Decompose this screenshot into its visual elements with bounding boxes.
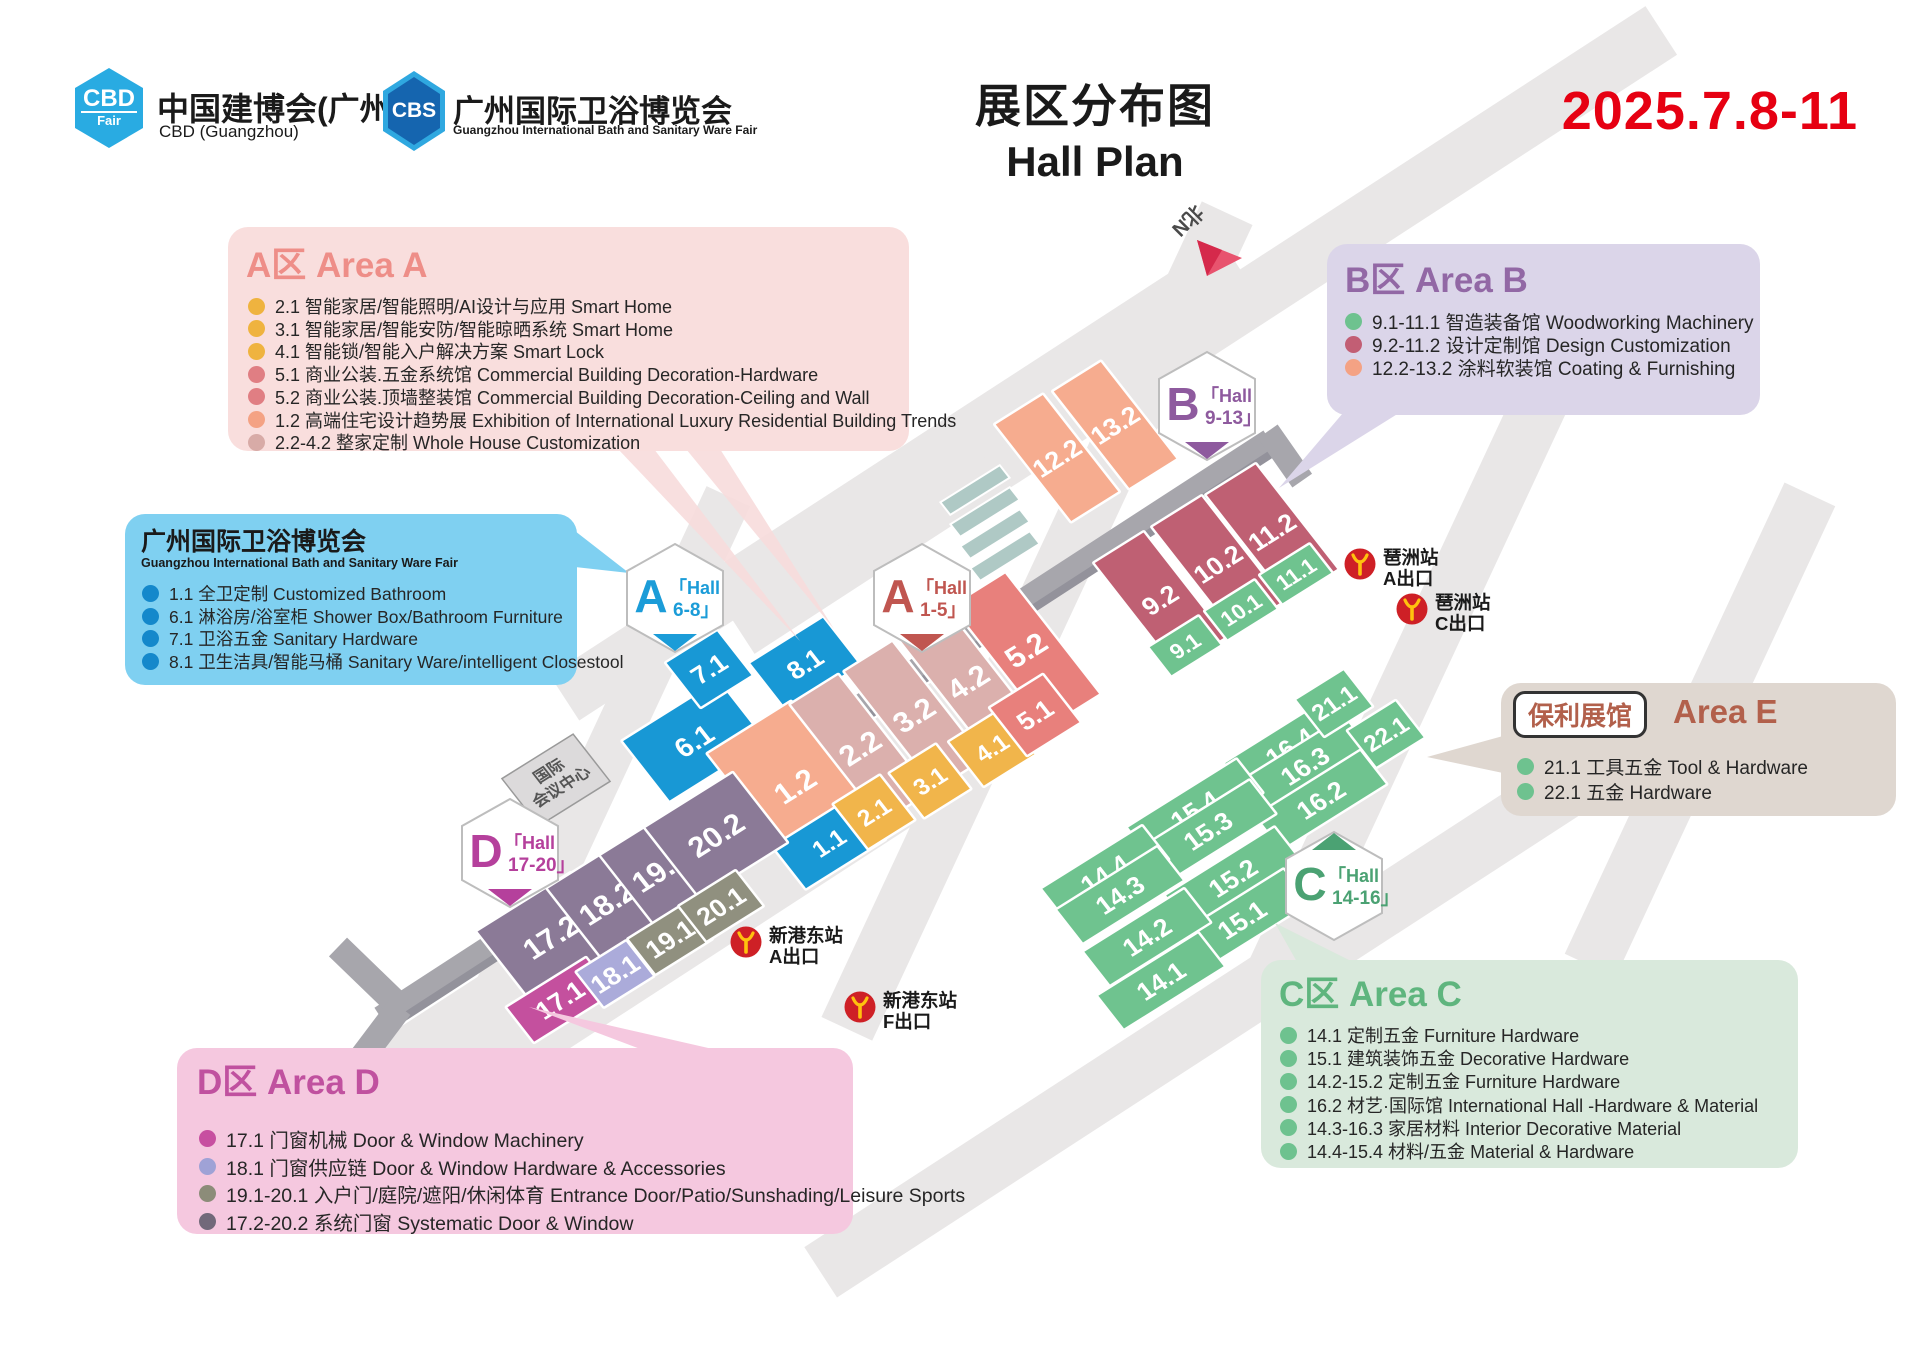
legend-bath-fair-item-1: 6.1 淋浴房/浴室柜 Shower Box/Bathroom Furnitur…: [142, 604, 563, 629]
legend-item-text: 6.1 淋浴房/浴室柜 Shower Box/Bathroom Furnitur…: [169, 604, 563, 629]
badge-letter: A: [881, 570, 914, 622]
page-title-cn: 展区分布图: [920, 70, 1270, 136]
legend-dot: [1345, 359, 1362, 376]
badge-hall-word: 「Hall: [916, 577, 967, 598]
legend-dot: [248, 343, 265, 360]
legend-item-text: 22.1 五金 Hardware: [1544, 778, 1712, 805]
metro-station-name: 新港东站: [769, 925, 844, 946]
legend-dot: [199, 1185, 216, 1202]
legend-dot: [1517, 758, 1534, 775]
legend-item-text: 16.2 材艺·国际馆 International Hall -Hardware…: [1307, 1092, 1758, 1118]
legend-item-text: 14.1 定制五金 Furniture Hardware: [1307, 1022, 1579, 1048]
legend-item-text: 18.1 门窗供应链 Door & Window Hardware & Acce…: [226, 1152, 726, 1181]
legend-area-d-item-3: 17.2-20.2 系统门窗 Systematic Door & Window: [199, 1207, 633, 1236]
legend-bath-fair-title: 广州国际卫浴博览会: [141, 522, 366, 558]
badge-hall-range: 14-16」: [1332, 888, 1400, 909]
metro-琶洲站-A出口: 琶洲站A出口: [1345, 547, 1440, 589]
legend-area-d-item-2: 19.1-20.1 入户门/庭院/遮阳/休闲体育 Entrance Door/P…: [199, 1179, 965, 1208]
legend-area-e: 保利展馆Area E21.1 工具五金 Tool & Hardware22.1 …: [1501, 683, 1896, 816]
legend-item-text: 19.1-20.1 入户门/庭院/遮阳/休闲体育 Entrance Door/P…: [226, 1179, 965, 1208]
legend-area-b-item-2: 12.2-13.2 涂料软装馆 Coating & Furnishing: [1345, 354, 1735, 381]
legend-area-c-item-1: 15.1 建筑装饰五金 Decorative Hardware: [1280, 1045, 1629, 1071]
legend-dot: [1280, 1096, 1297, 1113]
badge-hall-word: 「Hall: [1328, 865, 1379, 886]
legend-dot: [1280, 1073, 1297, 1090]
legend-area-a-item-6: 2.2-4.2 整家定制 Whole House Customization: [248, 429, 640, 455]
legend-area-c: C区 Area C14.1 定制五金 Furniture Hardware15.…: [1261, 960, 1798, 1168]
badge-hall-word: 「Hall: [669, 577, 720, 598]
page-title: 展区分布图 Hall Plan: [920, 70, 1270, 186]
legend-item-text: 14.4-15.4 材料/五金 Material & Hardware: [1307, 1138, 1634, 1164]
legend-area-d-item-0: 17.1 门窗机械 Door & Window Machinery: [199, 1124, 584, 1153]
legend-item-text: 2.2-4.2 整家定制 Whole House Customization: [275, 429, 640, 455]
legend-item-text: 7.1 卫浴五金 Sanitary Hardware: [169, 626, 418, 651]
legend-dot: [1280, 1050, 1297, 1067]
legend-area-c-item-3: 16.2 材艺·国际馆 International Hall -Hardware…: [1280, 1092, 1758, 1118]
legend-area-c-item-2: 14.2-15.2 定制五金 Furniture Hardware: [1280, 1068, 1620, 1094]
metro-station-name: 琶洲站: [1383, 547, 1439, 568]
legend-item-text: 14.3-16.3 家居材料 Interior Decorative Mater…: [1307, 1115, 1681, 1141]
legend-bath-fair-item-2: 7.1 卫浴五金 Sanitary Hardware: [142, 626, 418, 651]
legend-dot: [199, 1213, 216, 1230]
badge-hall-range: 9-13」: [1205, 408, 1262, 429]
legend-area-d-title: D区 Area D: [197, 1054, 380, 1105]
legend-area-b: B区 Area B9.1-11.1 智造装备馆 Woodworking Mach…: [1327, 244, 1760, 415]
metro-exit-name: F出口: [883, 1011, 931, 1032]
legend-item-text: 1.1 全卫定制 Customized Bathroom: [169, 581, 446, 606]
legend-dot: [248, 388, 265, 405]
legend-item-text: 21.1 工具五金 Tool & Hardware: [1544, 753, 1808, 780]
legend-dot: [1280, 1027, 1297, 1044]
legend-area-e-badge: 保利展馆: [1513, 691, 1647, 738]
legend-area-d-item-1: 18.1 门窗供应链 Door & Window Hardware & Acce…: [199, 1152, 726, 1181]
badge-letter: D: [469, 825, 502, 877]
fair2-subtitle: Guangzhou International Bath and Sanitar…: [453, 123, 757, 137]
legend-item-text: 8.1 卫生洁具/智能马桶 Sanitary Ware/intelligent …: [169, 649, 624, 674]
legend-item-text: 12.2-13.2 涂料软装馆 Coating & Furnishing: [1372, 354, 1735, 381]
page-title-en: Hall Plan: [920, 138, 1270, 186]
badge-letter: A: [634, 570, 667, 622]
legend-area-b-title: B区 Area B: [1345, 252, 1528, 303]
badge-hall-range: 17-20」: [508, 855, 576, 876]
legend-area-e-item-1: 22.1 五金 Hardware: [1517, 778, 1712, 805]
legend-dot: [1280, 1119, 1297, 1136]
legend-bath-fair: 广州国际卫浴博览会Guangzhou International Bath an…: [125, 514, 577, 685]
legend-dot: [142, 630, 159, 647]
legend-item-text: 17.1 门窗机械 Door & Window Machinery: [226, 1124, 584, 1153]
legend-dot: [248, 434, 265, 451]
legend-item-text: 14.2-15.2 定制五金 Furniture Hardware: [1307, 1068, 1620, 1094]
badge-hall-word: 「Hall: [504, 832, 555, 853]
legend-dot: [1517, 783, 1534, 800]
cbs-logo-text: CBS: [392, 99, 436, 123]
legend-dot: [1280, 1143, 1297, 1160]
legend-dot: [142, 585, 159, 602]
legend-area-c-item-4: 14.3-16.3 家居材料 Interior Decorative Mater…: [1280, 1115, 1681, 1141]
metro-exit-name: A出口: [769, 946, 819, 967]
legend-area-d: D区 Area D17.1 门窗机械 Door & Window Machine…: [177, 1048, 853, 1234]
legend-dot: [142, 653, 159, 670]
legend-dot: [248, 298, 265, 315]
legend-dot: [199, 1158, 216, 1175]
legend-area-c-item-0: 14.1 定制五金 Furniture Hardware: [1280, 1022, 1579, 1048]
cbd-logo-text: CBD: [81, 87, 137, 113]
legend-area-c-item-5: 14.4-15.4 材料/五金 Material & Hardware: [1280, 1138, 1634, 1164]
legend-area-a-title: A区 Area A: [246, 237, 428, 288]
badge-hall-range: 6-8」: [673, 600, 719, 621]
badge-letter: B: [1166, 378, 1199, 430]
legend-dot: [248, 366, 265, 383]
metro-station-name: 新港东站: [883, 990, 958, 1011]
badge-letter: C: [1293, 858, 1326, 910]
hall-plan-poster: 国际 会议中心 6.17.18.112.213.21.21.12.23.24.2…: [0, 0, 1920, 1358]
metro-station-name: 琶洲站: [1435, 592, 1491, 613]
badge-hall-range: 1-5」: [920, 600, 966, 621]
legend-area-c-title: C区 Area C: [1279, 966, 1462, 1017]
legend-bath-fair-subtitle: Guangzhou International Bath and Sanitar…: [141, 556, 458, 570]
cbd-logo-subtext: Fair: [97, 113, 121, 129]
badge-hall-word: 「Hall: [1201, 385, 1252, 406]
metro-exit-name: C出口: [1435, 613, 1485, 634]
legend-dot: [199, 1130, 216, 1147]
legend-dot: [248, 320, 265, 337]
legend-item-text: 15.1 建筑装饰五金 Decorative Hardware: [1307, 1045, 1629, 1071]
legend-item-text: 17.2-20.2 系统门窗 Systematic Door & Window: [226, 1207, 633, 1236]
legend-dot: [248, 411, 265, 428]
legend-area-a: A区 Area A2.1 智能家居/智能照明/AI设计与应用 Smart Hom…: [228, 227, 909, 451]
legend-dot: [142, 608, 159, 625]
legend-dot: [1345, 313, 1362, 330]
legend-bath-fair-item-3: 8.1 卫生洁具/智能马桶 Sanitary Ware/intelligent …: [142, 649, 624, 674]
legend-area-e-title: Area E: [1673, 693, 1778, 731]
event-date: 2025.7.8-11: [1562, 80, 1858, 142]
legend-area-e-item-0: 21.1 工具五金 Tool & Hardware: [1517, 753, 1808, 780]
legend-dot: [1345, 336, 1362, 353]
fair1-subtitle: CBD (Guangzhou): [159, 122, 299, 142]
metro-新港东站-A出口: 新港东站A出口: [731, 925, 844, 967]
legend-bath-fair-item-0: 1.1 全卫定制 Customized Bathroom: [142, 581, 446, 606]
metro-exit-name: A出口: [1383, 568, 1433, 589]
